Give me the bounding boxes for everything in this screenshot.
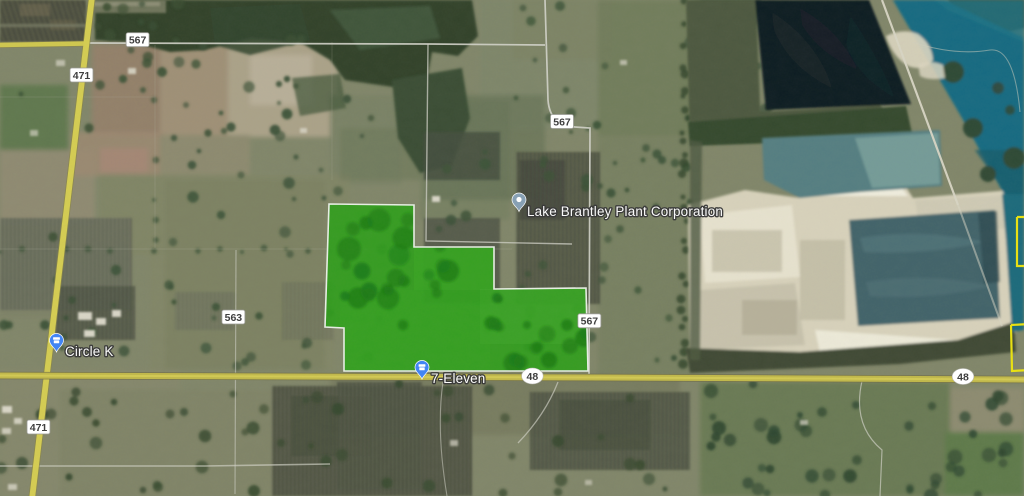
svg-text:563: 563 — [225, 312, 243, 324]
svg-text:Circle K: Circle K — [65, 344, 113, 359]
svg-text:Lake Brantley Plant Corporatio: Lake Brantley Plant Corporation — [527, 204, 723, 219]
svg-text:471: 471 — [73, 70, 91, 82]
svg-text:567: 567 — [129, 35, 147, 47]
svg-text:48: 48 — [527, 371, 539, 383]
svg-text:471: 471 — [30, 422, 48, 434]
svg-text:567: 567 — [581, 316, 599, 328]
svg-text:48: 48 — [957, 371, 969, 383]
svg-text:567: 567 — [553, 116, 571, 128]
svg-text:7-Eleven: 7-Eleven — [431, 371, 485, 386]
